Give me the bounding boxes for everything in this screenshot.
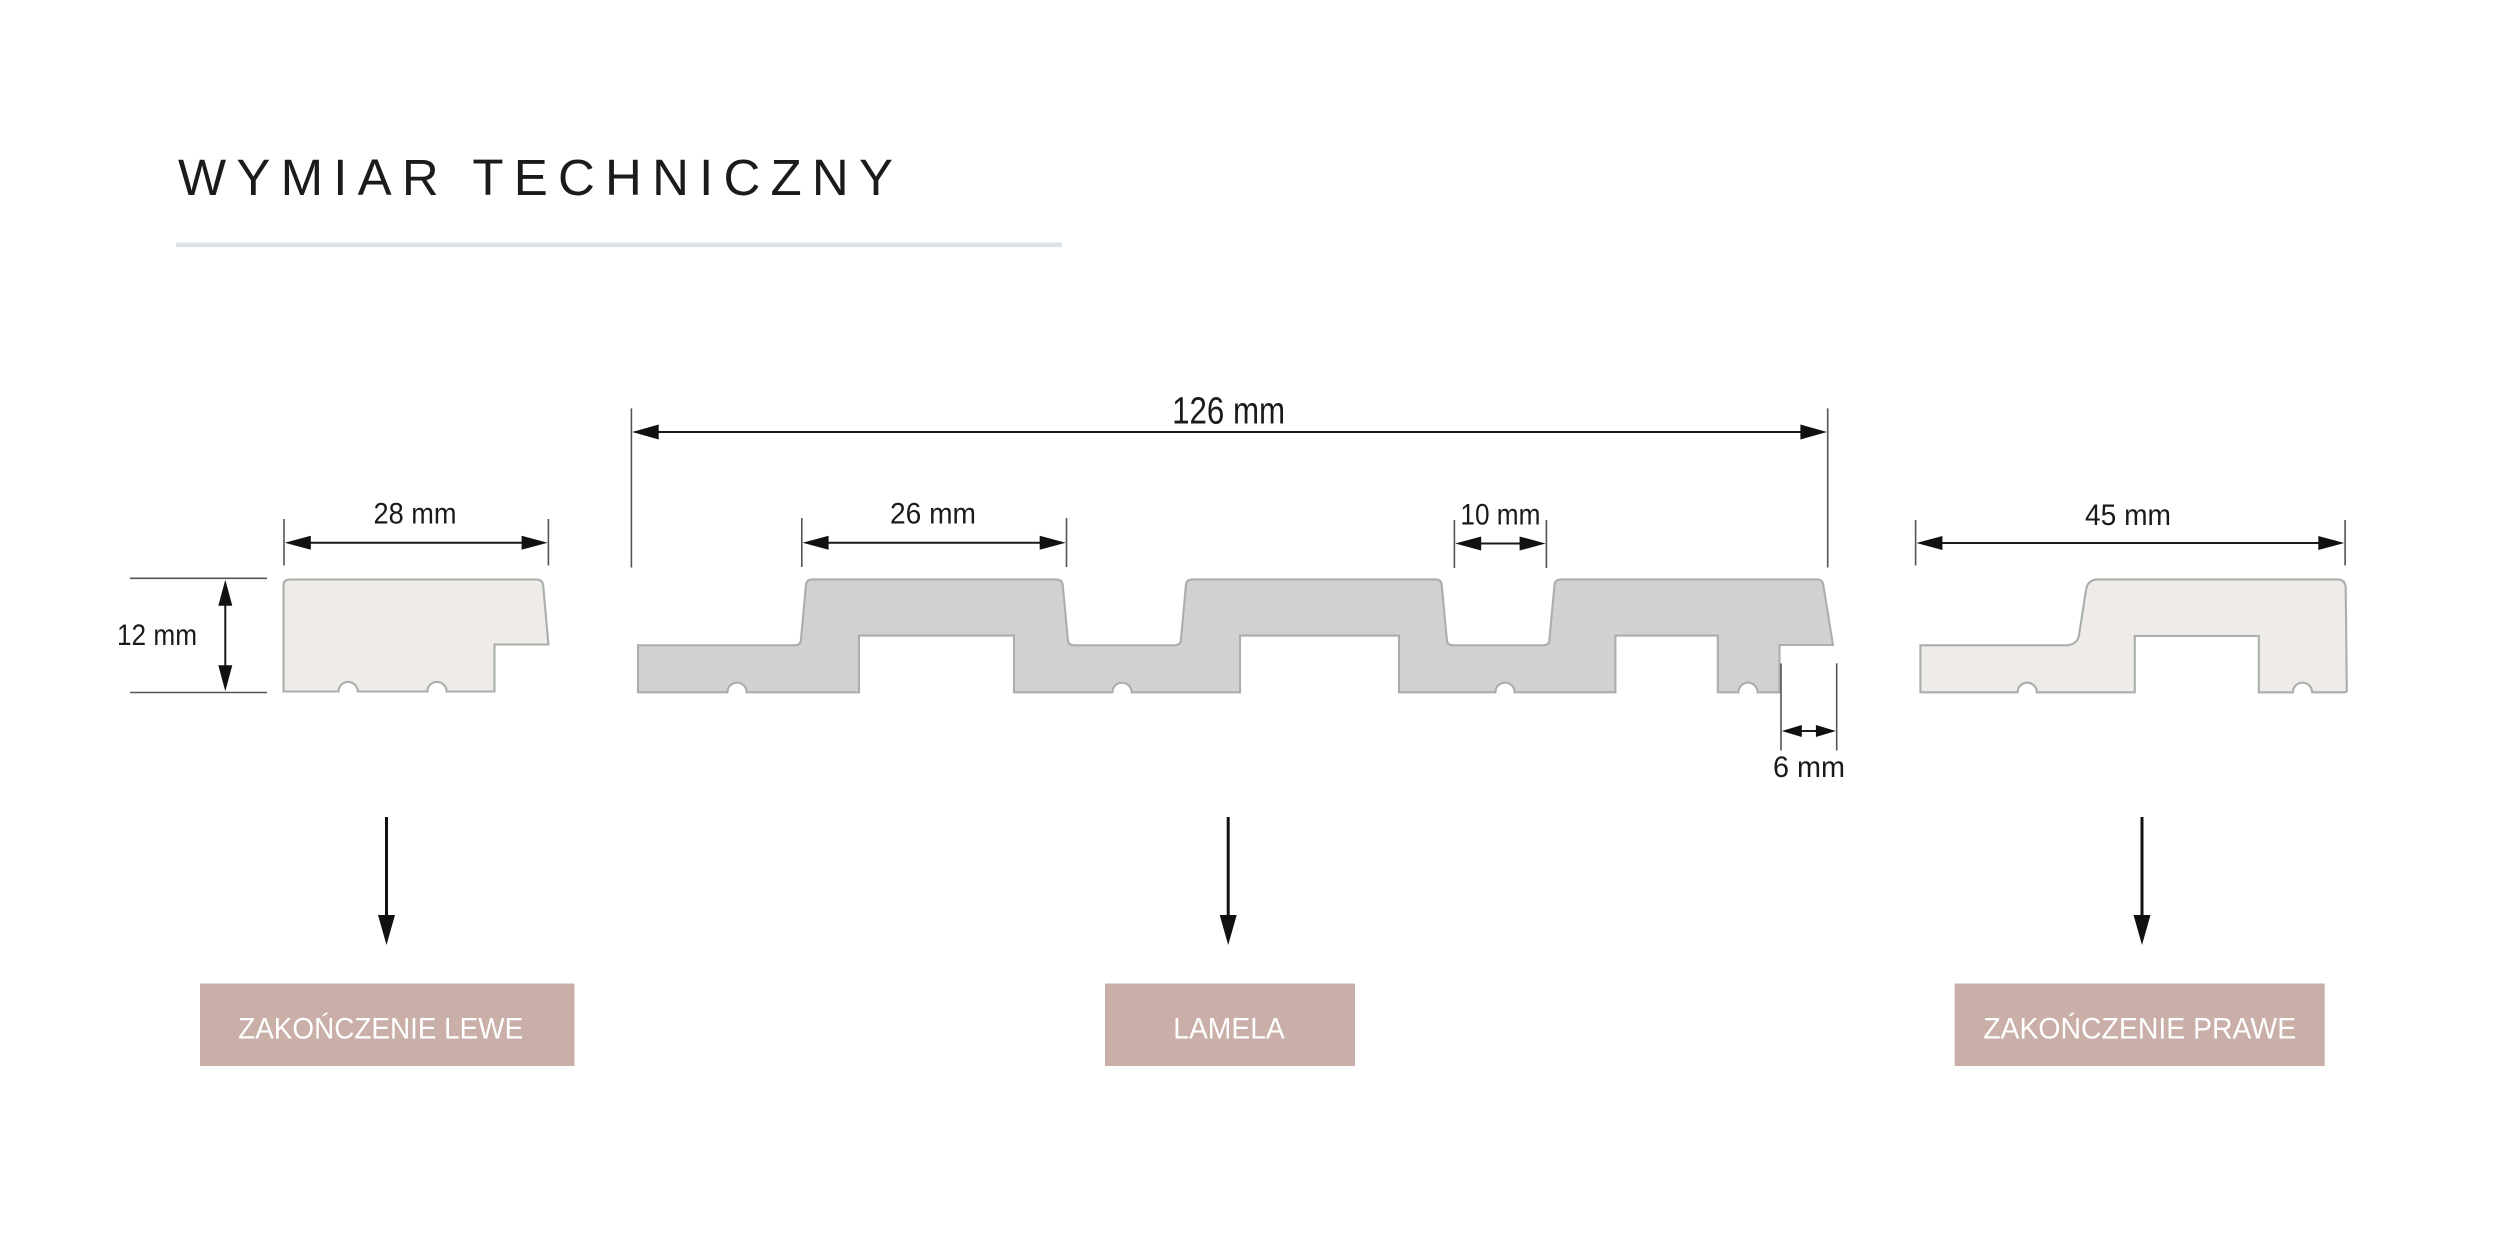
svg-text:26 mm: 26 mm: [890, 498, 976, 531]
svg-text:WYMIAR TECHNICZNY: WYMIAR TECHNICZNY: [178, 149, 903, 206]
svg-text:126 mm: 126 mm: [1172, 391, 1285, 433]
svg-text:LAMELA: LAMELA: [1173, 1013, 1285, 1046]
svg-text:ZAKOŃCZENIE PRAWE: ZAKOŃCZENIE PRAWE: [1983, 1013, 2296, 1046]
svg-text:12 mm: 12 mm: [117, 619, 197, 652]
svg-text:10 mm: 10 mm: [1460, 499, 1540, 532]
svg-text:28 mm: 28 mm: [374, 498, 457, 531]
svg-text:45 mm: 45 mm: [2085, 499, 2171, 532]
svg-text:ZAKOŃCZENIE LEWE: ZAKOŃCZENIE LEWE: [238, 1013, 523, 1046]
svg-text:6 mm: 6 mm: [1773, 751, 1845, 784]
